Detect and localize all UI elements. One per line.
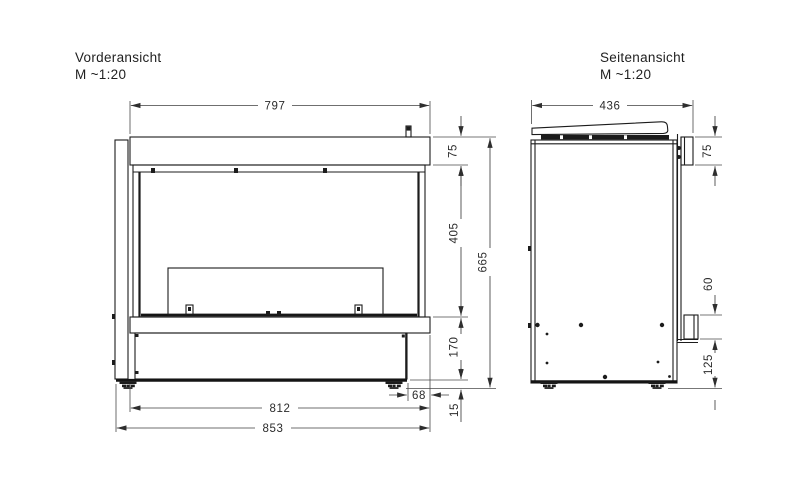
side-right-foot	[649, 382, 666, 389]
side-left-foot	[541, 382, 558, 389]
dim-label: 853	[263, 423, 284, 435]
front-plinth	[116, 317, 430, 380]
front-feet	[120, 382, 403, 389]
side-view-title: Seitenansicht	[600, 50, 685, 65]
dim-front-top-width: 797	[130, 101, 430, 135]
front-view-title-block: Vorderansicht M ~1:20	[75, 50, 161, 82]
side-body	[528, 140, 677, 383]
dim-label: 797	[265, 101, 286, 113]
dim-front-glass-height: 405	[433, 166, 468, 317]
front-left-side-panel	[112, 140, 128, 379]
dim-side-frame-height: 75	[695, 116, 722, 186]
dim-label: 125	[703, 354, 715, 375]
front-view-drawing: 797 75 405 170	[112, 101, 496, 436]
side-view-title-block: Seitenansicht M ~1:20	[600, 50, 685, 82]
technical-drawing-canvas: Vorderansicht M ~1:20 Seitenansicht M ~1…	[0, 0, 800, 500]
dim-label: 75	[448, 144, 460, 158]
front-left-foot	[120, 382, 137, 389]
front-view-scale: M ~1:20	[75, 67, 126, 82]
dim-label: 75	[702, 144, 714, 158]
dim-side-bracket-height: 60	[700, 277, 722, 353]
front-right-foot	[386, 382, 403, 389]
dim-front-body-width: 812	[130, 384, 429, 415]
dim-label: 170	[449, 337, 461, 358]
dim-front-hood-height: 75	[433, 116, 496, 186]
side-view-drawing: 436 75 60 125	[528, 100, 722, 410]
dim-label: 405	[449, 223, 461, 244]
side-top-plate	[532, 122, 669, 140]
front-burner-tray	[168, 268, 383, 315]
side-front-frame	[677, 134, 698, 343]
dim-label: 812	[270, 403, 291, 415]
front-view-title: Vorderansicht	[75, 50, 161, 65]
side-view-scale: M ~1:20	[600, 67, 651, 82]
dim-label: 436	[600, 101, 621, 113]
dim-label: 15	[449, 403, 461, 417]
dim-label: 60	[703, 277, 715, 291]
front-hood	[130, 126, 430, 165]
front-viewing-window	[133, 165, 425, 317]
dim-label: 665	[478, 252, 490, 273]
dim-side-depth: 436	[532, 100, 694, 133]
dim-front-total-height: 665	[478, 138, 491, 387]
dim-label: 68	[412, 390, 426, 402]
dim-front-plinth-height: 170	[410, 318, 468, 380]
